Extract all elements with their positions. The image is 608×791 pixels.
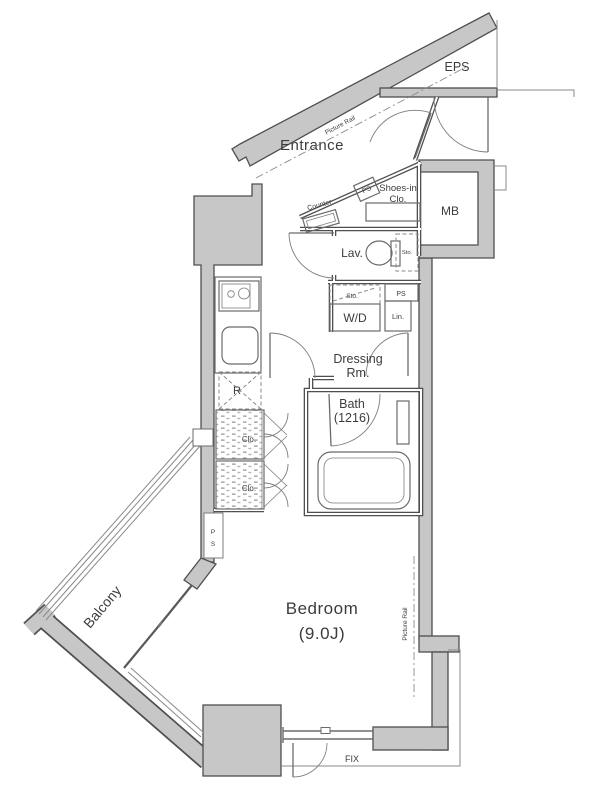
ps-wall-letter-2: S <box>211 541 216 548</box>
refrigerator-label: R <box>233 385 241 397</box>
storage-toilet-label: Sto. <box>402 250 413 256</box>
floor-plan-svg: Balcony Entrance Picture Rail PS Shoes-i… <box>0 0 608 791</box>
storage-washer-label: Sto. <box>346 293 358 300</box>
washer-dryer-label: W/D <box>343 311 367 325</box>
exterior-wall-bottom <box>373 727 448 750</box>
bedroom-label-2: (9.0J) <box>299 624 345 643</box>
closet-upper-box <box>216 410 264 459</box>
picture-rail-label-vertical: Picture Rail <box>402 607 409 641</box>
fix-window-label: FIX <box>345 754 359 764</box>
closet-lower-box <box>216 461 264 509</box>
closet-upper-label: Clo. <box>242 435 256 444</box>
exterior-wall-eps <box>380 88 497 97</box>
mb-label: MB <box>441 204 459 218</box>
lavatory-label: Lav. <box>341 246 363 260</box>
linen-label: Lin. <box>392 312 404 321</box>
eps-label: EPS <box>444 60 469 74</box>
entrance-label: Entrance <box>280 137 344 154</box>
ps-wall-letter-1: P <box>211 529 215 536</box>
bath-label-2: (1216) <box>334 411 370 425</box>
closet-lower-label: Clo. <box>242 484 256 493</box>
bath-label-1: Bath <box>339 397 365 411</box>
floor-plan-page: Balcony Entrance Picture Rail PS Shoes-i… <box>0 0 608 791</box>
bedroom-label-1: Bedroom <box>286 599 358 618</box>
railing-end-cap <box>193 429 213 446</box>
fix-window-tick <box>321 728 330 734</box>
dressing-label-1: Dressing <box>333 352 382 366</box>
shoes-closet-label-1: Shoes-in <box>379 183 417 194</box>
dressing-label-2: Rm. <box>347 366 370 380</box>
ps-utility-label: PS <box>396 291 406 298</box>
exterior-wall-bottom-block <box>203 705 281 776</box>
